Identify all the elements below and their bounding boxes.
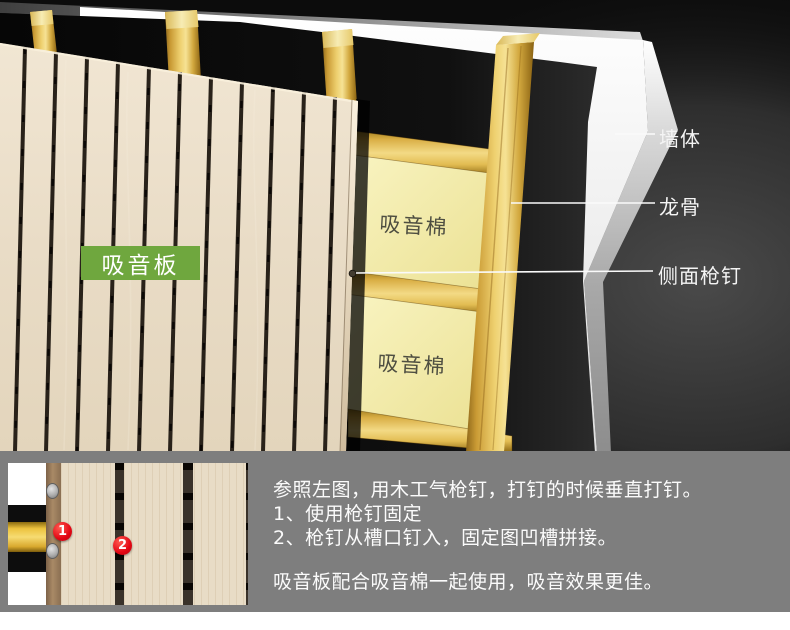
staple-head — [46, 483, 59, 499]
instruction-text: 参照左图，用木工气枪钉，打钉的时候垂直打钉。 1、使用枪钉固定 2、枪钉从槽口钉… — [273, 478, 773, 594]
step-badge-1: 1 — [53, 522, 72, 541]
slat-groove — [115, 463, 124, 605]
keel-rail-end — [8, 522, 48, 552]
cotton-label-2: 吸音棉 — [363, 347, 460, 382]
board-label-badge: 吸音板 — [81, 246, 200, 280]
board-label-text: 吸音板 — [102, 246, 180, 280]
slat-groove — [246, 463, 248, 605]
bottom-margin — [0, 612, 790, 630]
insulation-band — [8, 505, 48, 522]
instruction-line-1: 参照左图，用木工气枪钉，打钉的时候垂直打钉。 — [273, 478, 773, 502]
slat-groove — [183, 463, 193, 605]
installation-diagram: 吸音板 吸音棉 吸音棉 墙体 龙骨 侧面枪钉 — [0, 0, 790, 451]
product-detail-image: 吸音板 吸音棉 吸音棉 墙体 龙骨 侧面枪钉 1 2 参照左图，用木工气枪钉，打… — [0, 0, 790, 630]
cotton-label-1: 吸音棉 — [365, 208, 462, 243]
slat-surface — [61, 463, 248, 605]
insulation-band — [8, 552, 48, 572]
keel-stud-cap — [165, 10, 199, 29]
staple-head — [46, 543, 59, 559]
instruction-panel: 1 2 参照左图，用木工气枪钉，打钉的时候垂直打钉。 1、使用枪钉固定 2、枪钉… — [0, 451, 790, 612]
step-badge-2: 2 — [113, 536, 132, 555]
instruction-line-3: 2、枪钉从槽口钉入，固定图凹槽拼接。 — [273, 526, 773, 550]
callout-wall: 墙体 — [659, 123, 701, 152]
callout-keel: 龙骨 — [659, 191, 701, 220]
side-nail-dot — [349, 270, 356, 277]
keel-stud-cap — [30, 10, 54, 26]
callout-side-nail: 侧面枪钉 — [658, 260, 742, 289]
keel-stud-cap — [322, 29, 354, 48]
instruction-line-2: 1、使用枪钉固定 — [273, 502, 773, 526]
instruction-note: 吸音板配合吸音棉一起使用，吸音效果更佳。 — [273, 570, 773, 594]
closeup-photo: 1 2 — [8, 463, 248, 605]
